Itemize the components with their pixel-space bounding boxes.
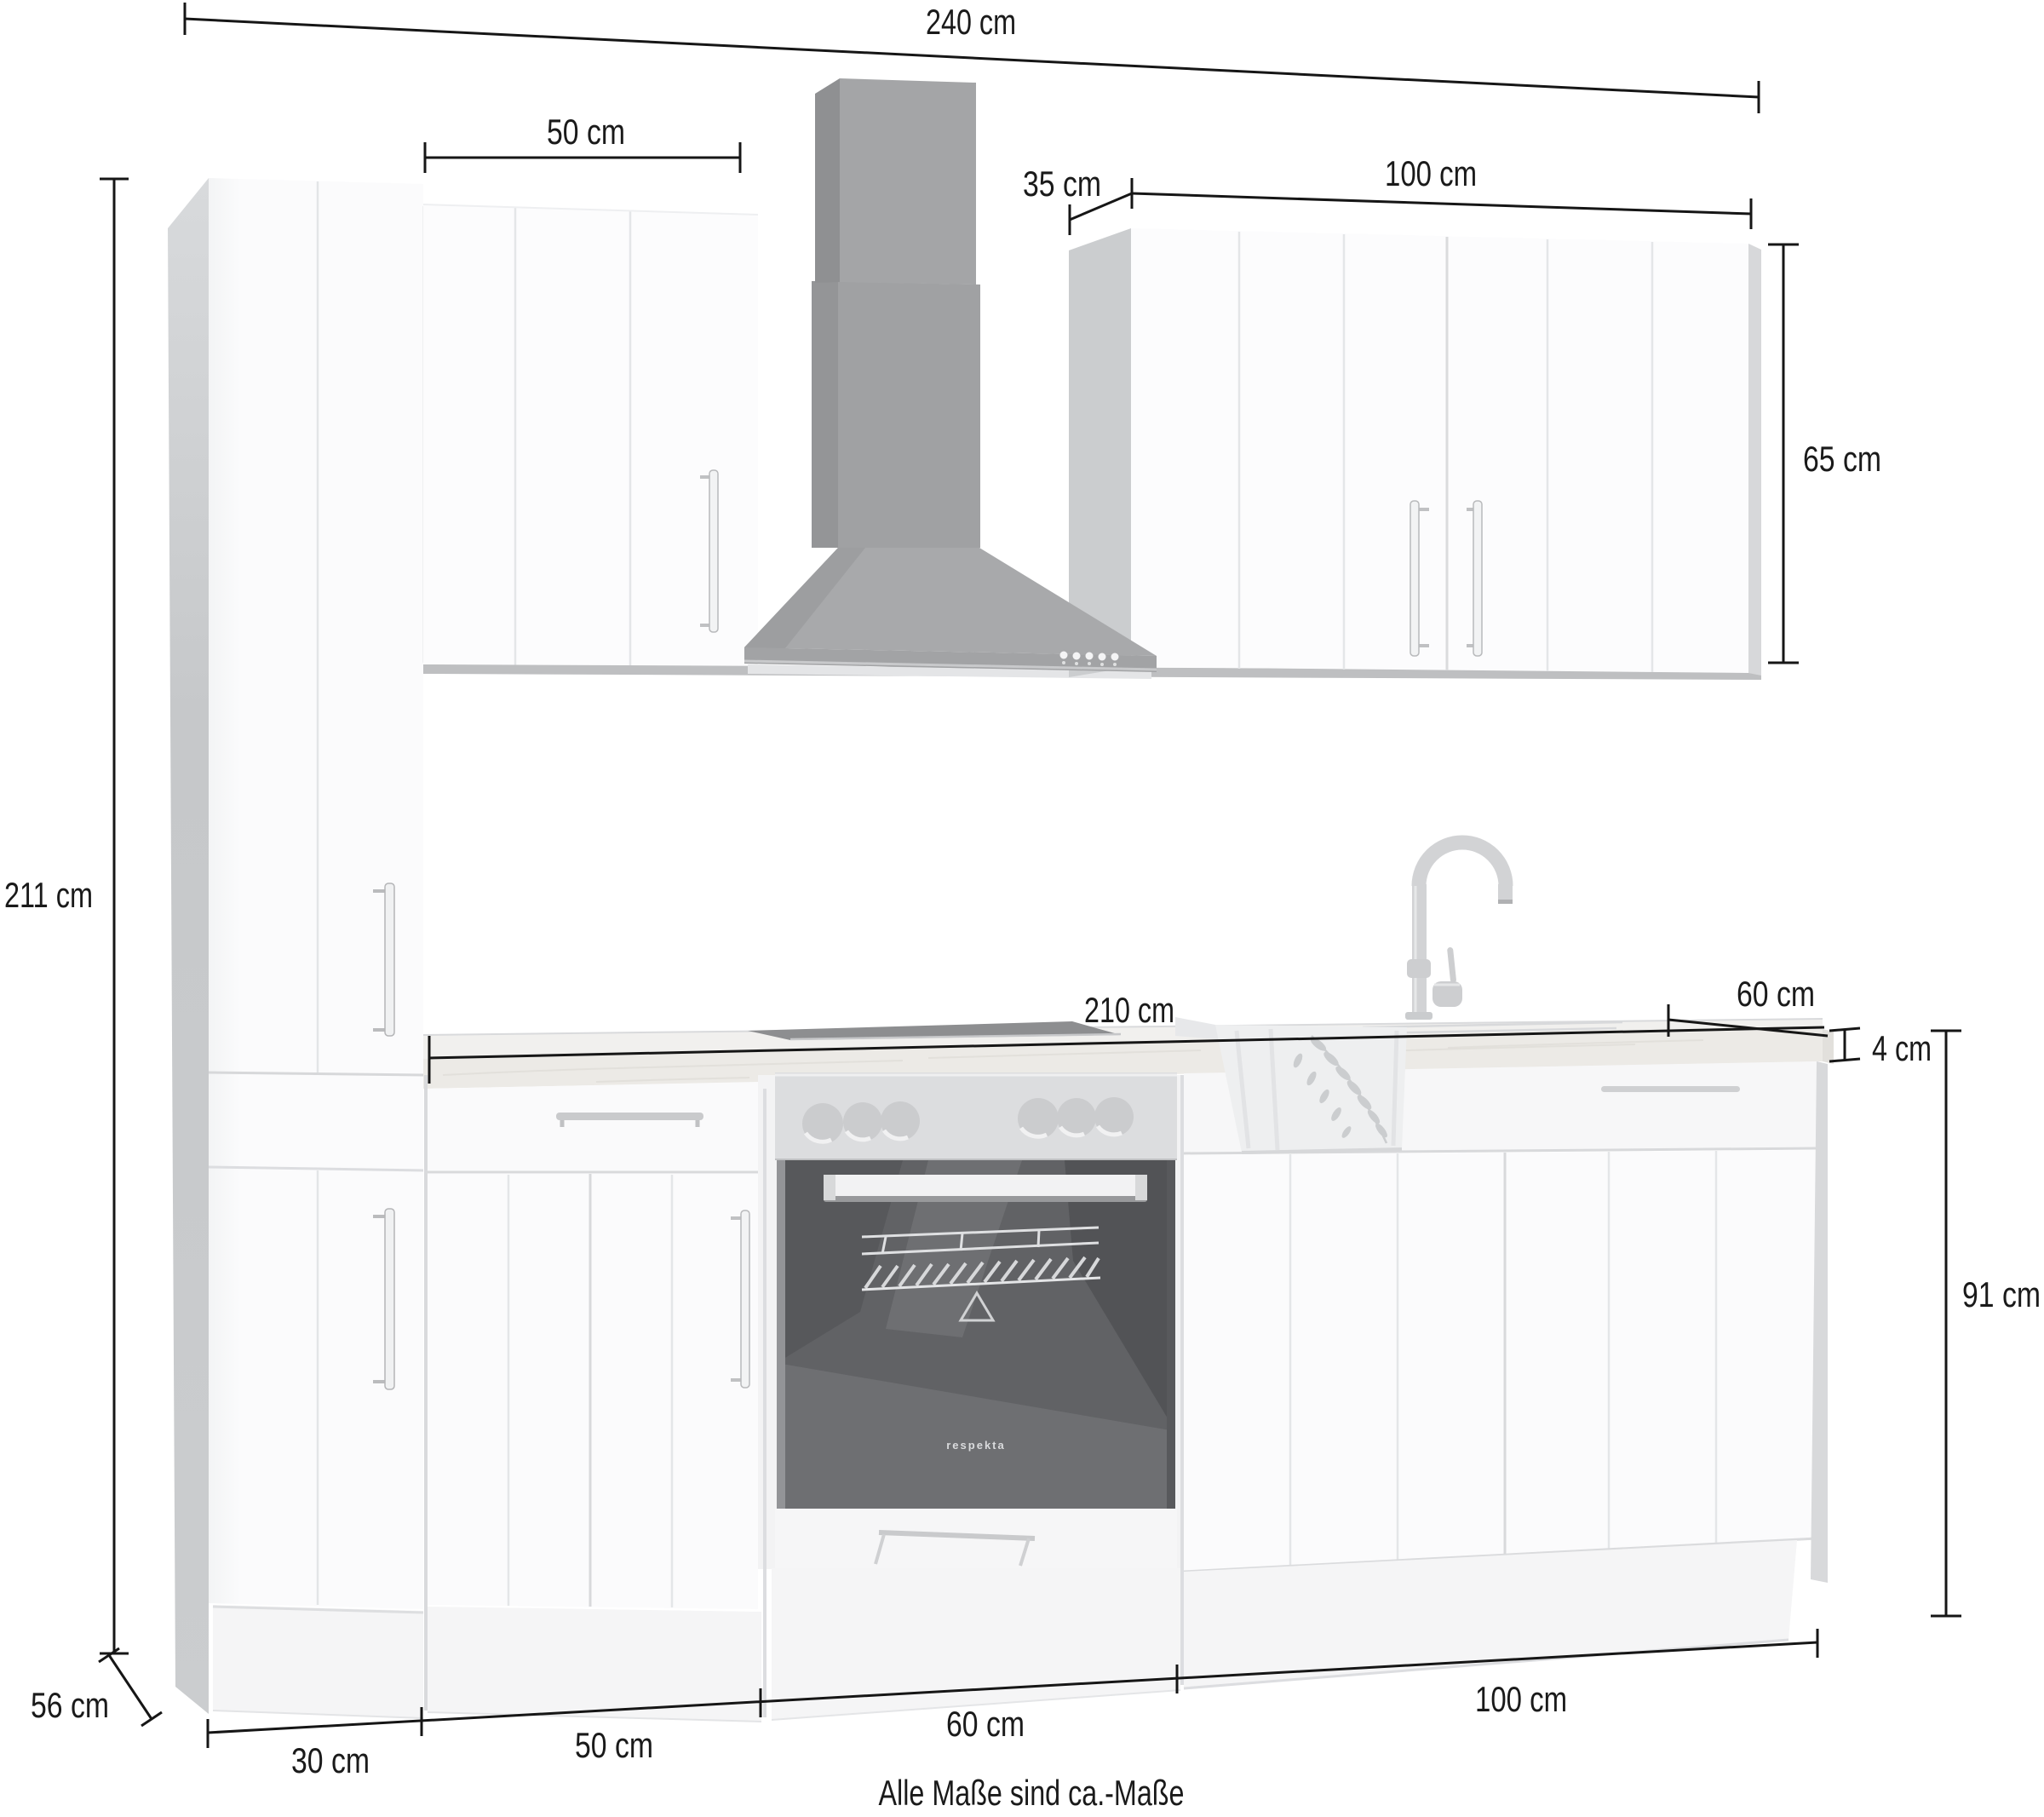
svg-text:60 cm: 60 cm (946, 1704, 1025, 1744)
svg-text:4 cm: 4 cm (1872, 1028, 1932, 1068)
svg-text:56 cm: 56 cm (31, 1685, 109, 1725)
svg-text:35 cm: 35 cm (1023, 164, 1101, 204)
svg-text:Alle Maße sind ca.-Maße: Alle Maße sind ca.-Maße (879, 1773, 1185, 1813)
svg-text:210 cm: 210 cm (1084, 990, 1174, 1030)
svg-text:65 cm: 65 cm (1803, 439, 1881, 479)
svg-text:50 cm: 50 cm (575, 1725, 653, 1765)
svg-text:respekta: respekta (946, 1439, 1005, 1452)
svg-text:50 cm: 50 cm (547, 112, 625, 152)
svg-text:91 cm: 91 cm (1962, 1274, 2041, 1314)
svg-text:240 cm: 240 cm (926, 2, 1016, 42)
svg-text:100 cm: 100 cm (1385, 153, 1477, 193)
svg-text:60 cm: 60 cm (1737, 974, 1815, 1014)
svg-text:30 cm: 30 cm (291, 1740, 370, 1780)
svg-text:211 cm: 211 cm (4, 875, 93, 915)
svg-text:100 cm: 100 cm (1475, 1679, 1567, 1719)
